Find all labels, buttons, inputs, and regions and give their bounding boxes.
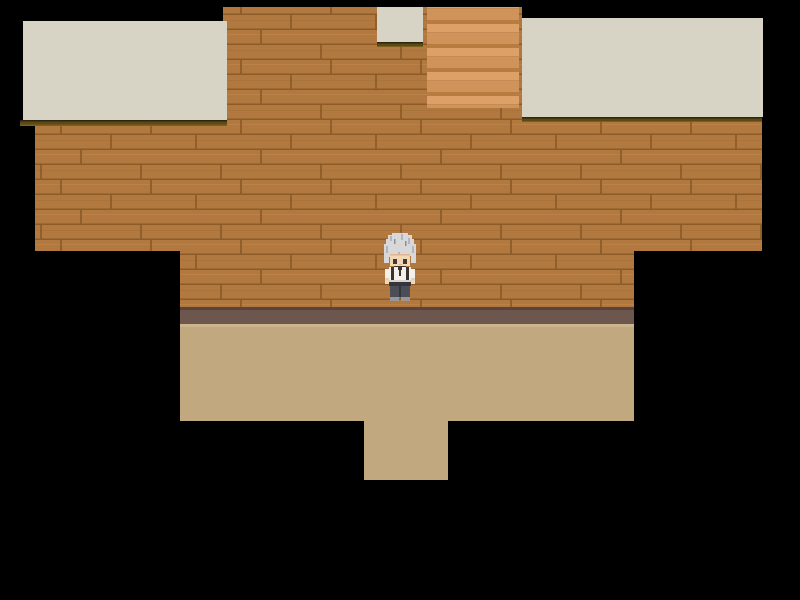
baseboard-strip [180,310,634,324]
roof-right [522,18,763,122]
wall-base-shadow [180,307,634,310]
floor-main[interactable] [180,327,634,421]
game-scene-canvas[interactable] [0,0,800,600]
roof-left [20,21,227,126]
game-window [0,0,800,600]
character-face [390,254,410,266]
floor-doorway-tab[interactable] [364,421,448,480]
wall-wide-band [35,122,762,251]
character-torso [385,266,415,284]
striped-wood-panel [427,7,519,108]
roof-notch-top [377,7,423,47]
floor-edge-highlight[interactable] [180,324,634,327]
